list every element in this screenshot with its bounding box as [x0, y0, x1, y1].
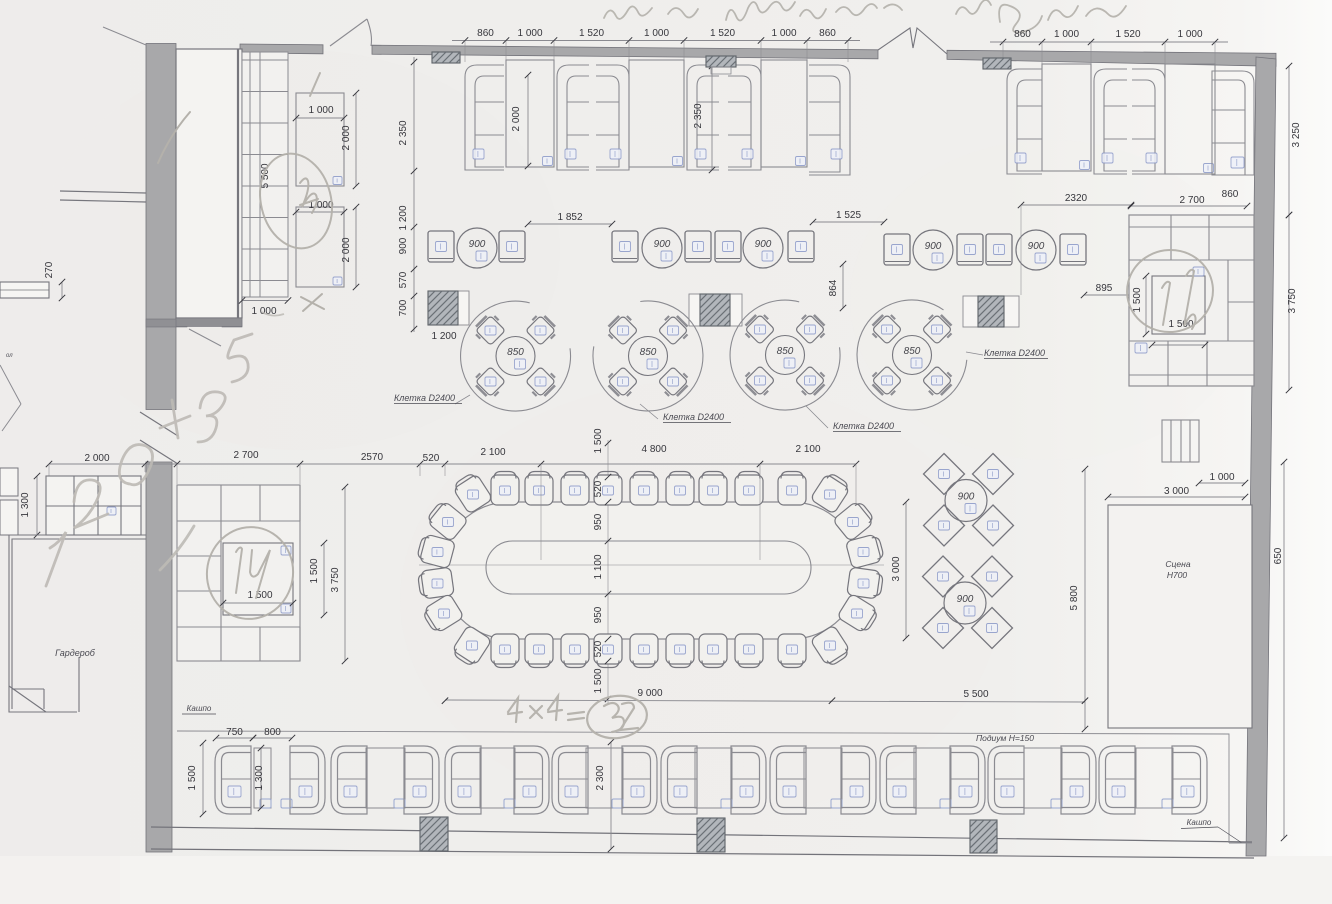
svg-text:2 000: 2 000 [341, 125, 352, 150]
svg-text:1 520: 1 520 [579, 28, 604, 39]
svg-text:Клетка D2400: Клетка D2400 [984, 348, 1045, 358]
svg-text:900: 900 [398, 237, 409, 254]
svg-text:3 250: 3 250 [1291, 122, 1302, 147]
svg-text:860: 860 [819, 28, 836, 39]
svg-text:1 300: 1 300 [254, 765, 265, 790]
svg-text:2 000: 2 000 [511, 106, 522, 131]
svg-text:Кашпо: Кашпо [187, 704, 212, 713]
svg-text:864: 864 [828, 279, 839, 296]
svg-text:3 000: 3 000 [1164, 486, 1189, 497]
svg-text:2570: 2570 [361, 452, 384, 463]
svg-text:Н700: Н700 [1167, 570, 1188, 580]
svg-text:3 750: 3 750 [330, 567, 341, 592]
svg-text:Подиум Н=150: Подиум Н=150 [976, 733, 1034, 743]
svg-text:2 350: 2 350 [693, 103, 704, 128]
svg-text:2 100: 2 100 [795, 444, 820, 455]
svg-text:1 100: 1 100 [593, 554, 604, 579]
svg-text:1 520: 1 520 [710, 28, 735, 39]
svg-text:520: 520 [593, 480, 604, 497]
svg-text:860: 860 [477, 28, 494, 39]
svg-text:1 000: 1 000 [644, 28, 669, 39]
svg-text:1 500: 1 500 [187, 765, 198, 790]
svg-text:2 700: 2 700 [233, 450, 258, 461]
svg-text:700: 700 [398, 299, 409, 316]
svg-text:2 350: 2 350 [398, 120, 409, 145]
svg-text:1 000: 1 000 [771, 28, 796, 39]
svg-text:3 750: 3 750 [1287, 288, 1298, 313]
svg-text:850: 850 [640, 347, 657, 358]
svg-text:1 000: 1 000 [1054, 29, 1079, 40]
svg-text:Клетка D2400: Клетка D2400 [833, 421, 894, 431]
svg-text:750: 750 [226, 727, 243, 738]
svg-text:ол: ол [6, 353, 13, 359]
svg-text:850: 850 [904, 346, 921, 357]
svg-text:570: 570 [398, 271, 409, 288]
svg-text:Клетка D2400: Клетка D2400 [663, 412, 724, 422]
svg-text:850: 850 [777, 346, 794, 357]
svg-text:860: 860 [1014, 29, 1031, 40]
svg-text:860: 860 [1222, 189, 1239, 200]
svg-text:1 500: 1 500 [309, 558, 320, 583]
svg-text:1 500: 1 500 [1132, 287, 1143, 312]
svg-text:1 000: 1 000 [1209, 472, 1234, 483]
svg-text:895: 895 [1096, 283, 1113, 294]
svg-text:9 000: 9 000 [637, 688, 662, 699]
svg-text:950: 950 [593, 606, 604, 623]
svg-text:1 000: 1 000 [1177, 29, 1202, 40]
svg-text:900: 900 [957, 594, 974, 605]
svg-text:Кашпо: Кашпо [1187, 818, 1212, 827]
svg-text:Гардероб: Гардероб [55, 648, 96, 658]
svg-text:2 100: 2 100 [480, 447, 505, 458]
svg-text:900: 900 [755, 239, 772, 250]
svg-text:2 300: 2 300 [595, 765, 606, 790]
svg-text:1 500: 1 500 [593, 428, 604, 453]
svg-text:4 800: 4 800 [641, 444, 666, 455]
svg-text:1 200: 1 200 [431, 331, 456, 342]
svg-text:800: 800 [264, 727, 281, 738]
svg-text:950: 950 [593, 513, 604, 530]
svg-text:1 852: 1 852 [557, 212, 582, 223]
svg-text:1 525: 1 525 [836, 210, 861, 221]
svg-text:900: 900 [958, 492, 975, 503]
svg-text:2 000: 2 000 [341, 237, 352, 262]
svg-text:520: 520 [593, 640, 604, 657]
svg-text:850: 850 [507, 347, 524, 358]
svg-text:5 500: 5 500 [963, 689, 988, 700]
svg-text:2320: 2320 [1065, 193, 1088, 204]
svg-text:2 700: 2 700 [1179, 195, 1204, 206]
svg-text:1 000: 1 000 [308, 105, 333, 116]
svg-text:1 200: 1 200 [398, 205, 409, 230]
svg-text:900: 900 [925, 241, 942, 252]
svg-text:900: 900 [469, 239, 486, 250]
svg-text:1 500: 1 500 [593, 668, 604, 693]
svg-text:3 000: 3 000 [891, 556, 902, 581]
svg-text:1 000: 1 000 [517, 28, 542, 39]
svg-text:5 800: 5 800 [1069, 585, 1080, 610]
svg-text:Сцена: Сцена [1165, 559, 1190, 569]
svg-text:1 500: 1 500 [247, 590, 272, 601]
svg-text:2 000: 2 000 [84, 453, 109, 464]
svg-text:520: 520 [423, 453, 440, 464]
svg-text:900: 900 [654, 239, 671, 250]
svg-text:1 520: 1 520 [1115, 29, 1140, 40]
svg-text:270: 270 [44, 261, 55, 278]
svg-text:650: 650 [1273, 547, 1284, 564]
svg-text:Клетка D2400: Клетка D2400 [394, 393, 455, 403]
svg-text:1 500: 1 500 [1168, 319, 1193, 330]
svg-text:900: 900 [1028, 241, 1045, 252]
svg-text:1 300: 1 300 [20, 492, 31, 517]
